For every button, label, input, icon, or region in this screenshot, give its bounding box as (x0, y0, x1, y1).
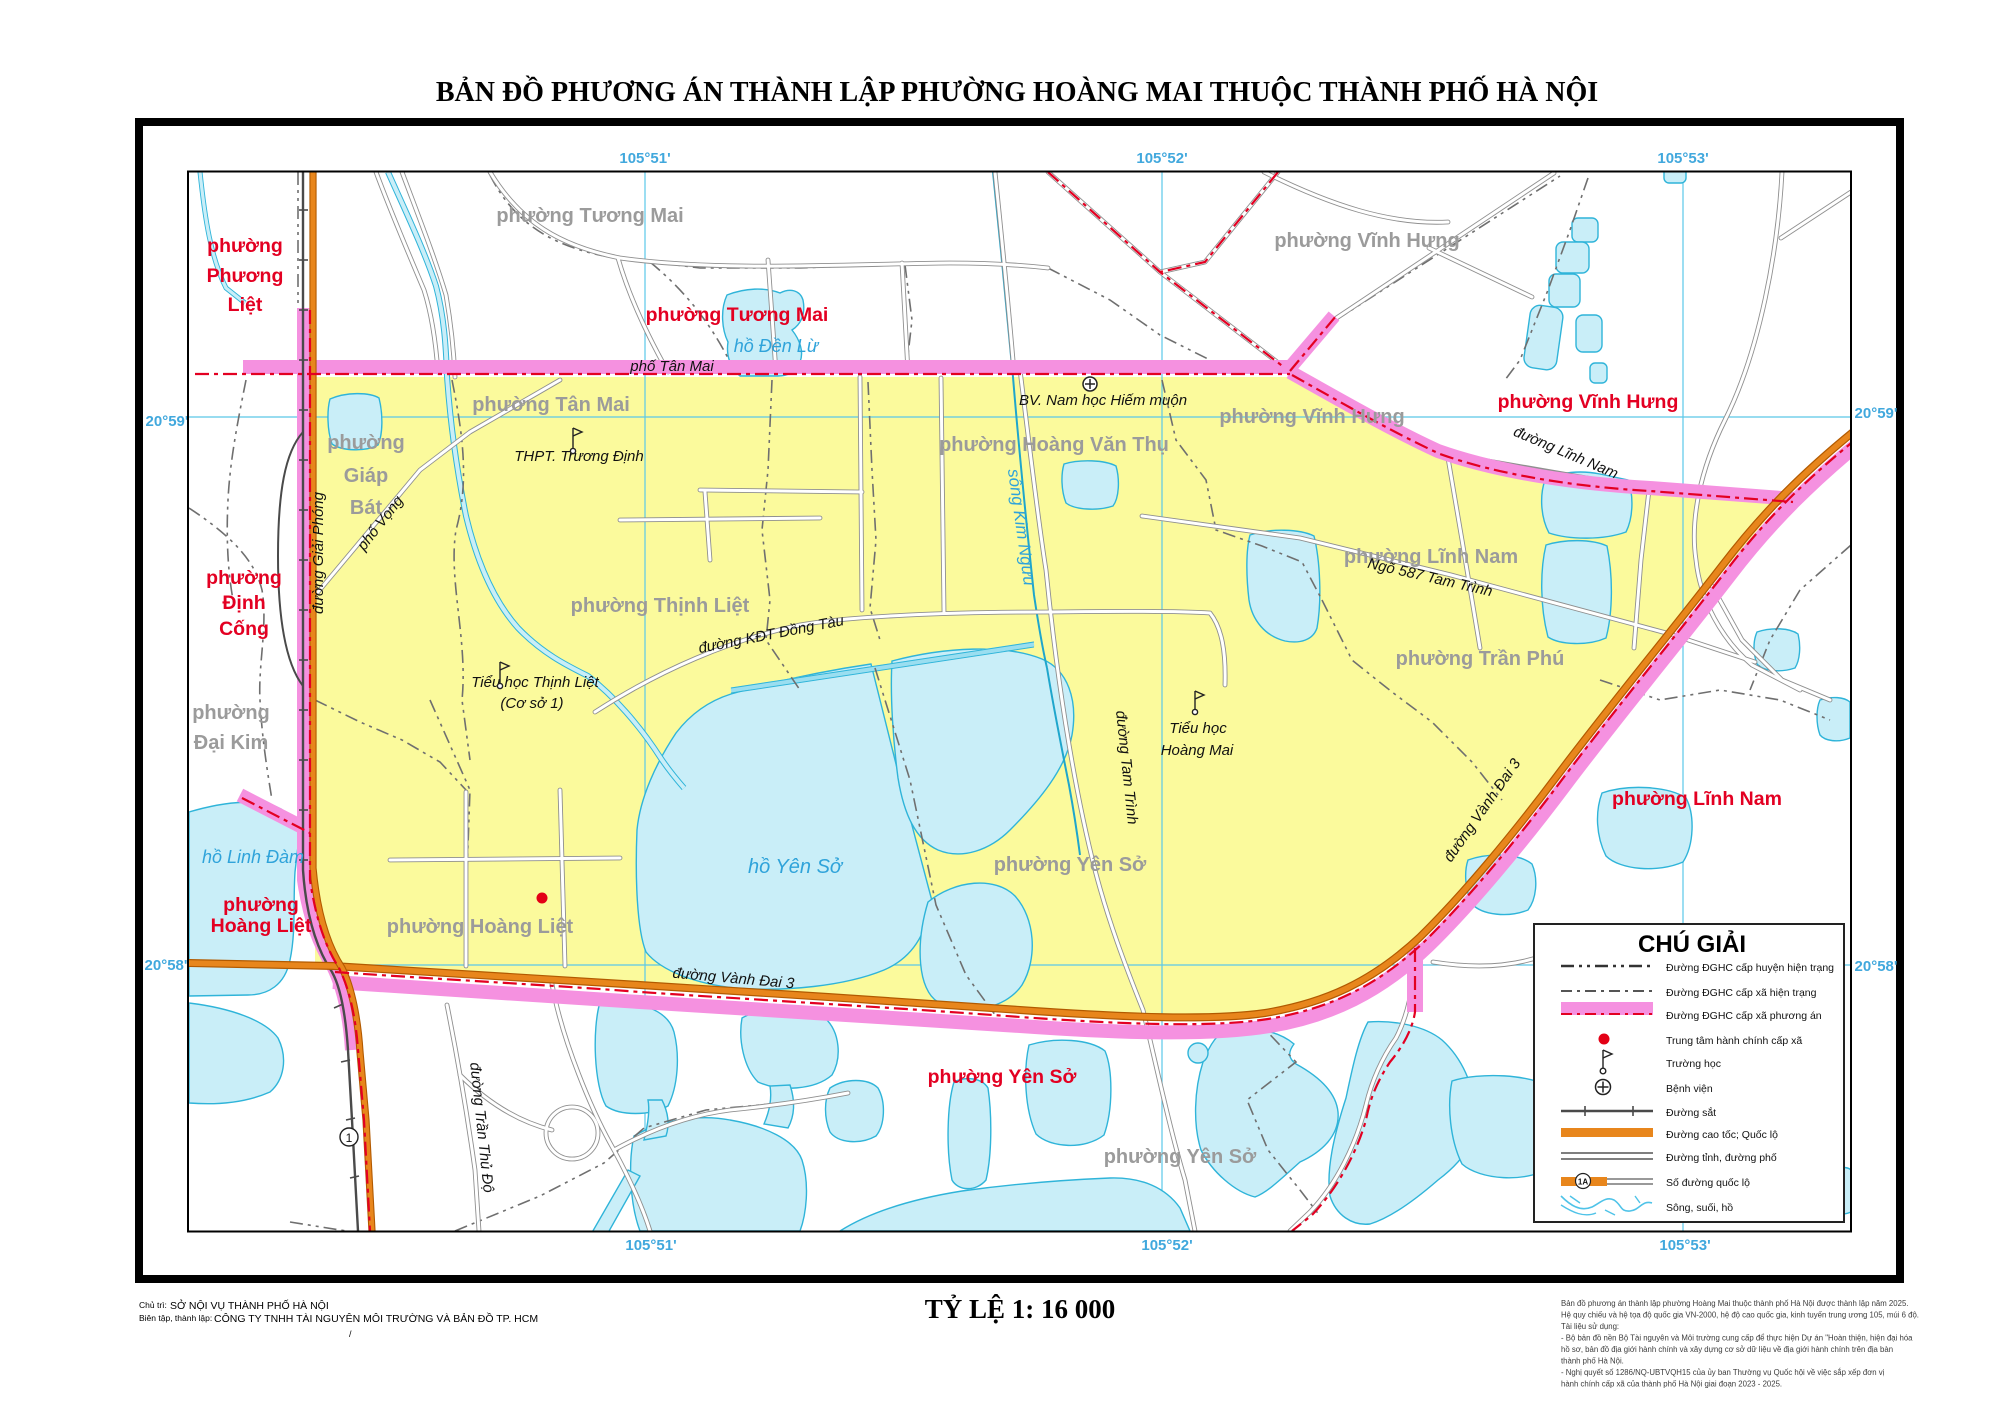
svg-text:105°53': 105°53' (1657, 150, 1708, 167)
svg-text:105°53': 105°53' (1659, 1237, 1710, 1254)
svg-text:1A: 1A (1578, 1178, 1588, 1187)
svg-text:- Bộ bản đồ nền Bộ Tài nguyên: - Bộ bản đồ nền Bộ Tài nguyên và Môi trư… (1561, 1334, 1913, 1343)
svg-text:Số đường quốc lộ: Số đường quốc lộ (1666, 1177, 1750, 1189)
svg-text:Phương: Phương (207, 265, 284, 287)
svg-text:phường Vĩnh Hưng: phường Vĩnh Hưng (1219, 406, 1404, 428)
svg-text:BẢN ĐỒ PHƯƠNG ÁN THÀNH LẬP PHƯ: BẢN ĐỒ PHƯƠNG ÁN THÀNH LẬP PHƯỜNG HOÀNG … (436, 76, 1598, 108)
svg-text:(Cơ sở 1): (Cơ sở 1) (500, 695, 563, 712)
svg-text:phường Lĩnh Nam: phường Lĩnh Nam (1612, 788, 1782, 810)
svg-text:hồ Linh Đàm: hồ Linh Đàm (202, 847, 304, 867)
svg-text:Trung tâm hành chính cấp xã: Trung tâm hành chính cấp xã (1666, 1035, 1802, 1047)
svg-text:phường: phường (207, 235, 283, 257)
svg-text:phường: phường (327, 432, 405, 454)
svg-text:20°58': 20°58' (145, 957, 188, 974)
svg-text:- Nghị quyết số 1286/NQ-UBTVQH: - Nghị quyết số 1286/NQ-UBTVQH15 của ủy … (1561, 1368, 1885, 1377)
svg-text:phường Hoàng Văn Thụ: phường Hoàng Văn Thụ (939, 434, 1169, 456)
svg-text:hồ sơ, bản đồ địa giới hành ch: hồ sơ, bản đồ địa giới hành chính và xây… (1561, 1345, 1893, 1354)
svg-text:Bản đồ phương án thành lập phư: Bản đồ phương án thành lập phường Hoàng … (1561, 1299, 1908, 1308)
svg-text:Bệnh viện: Bệnh viện (1666, 1083, 1713, 1095)
svg-text:Biên tập, thành lập:: Biên tập, thành lập: (139, 1313, 212, 1323)
svg-text:CÔNG TY TNHH TÀI NGUYÊN MÔI TR: CÔNG TY TNHH TÀI NGUYÊN MÔI TRƯỜNG VÀ BẢ… (214, 1312, 538, 1325)
svg-text:phường Tân Mai: phường Tân Mai (472, 394, 630, 416)
svg-text:thành phố Hà Nội.: thành phố Hà Nội. (1561, 1357, 1624, 1366)
svg-text:105°52': 105°52' (1136, 150, 1187, 167)
svg-text:phường Hoàng Liệt: phường Hoàng Liệt (387, 916, 574, 938)
svg-text:20°59': 20°59' (1855, 405, 1898, 422)
svg-text:Sông, suối, hồ: Sông, suối, hồ (1666, 1202, 1733, 1214)
svg-text:THPT. Trương Định: THPT. Trương Định (514, 448, 643, 465)
svg-text:phố Tân Mai: phố Tân Mai (629, 358, 714, 375)
svg-text:CHÚ GIẢI: CHÚ GIẢI (1638, 929, 1746, 958)
svg-text:Tiểu học Thịnh Liệt: Tiểu học Thịnh Liệt (471, 674, 599, 691)
svg-text:20°58': 20°58' (1855, 958, 1898, 975)
svg-text:Cống: Cống (219, 618, 269, 640)
svg-text:phường Thịnh Liệt: phường Thịnh Liệt (571, 595, 750, 617)
svg-text:105°52': 105°52' (1141, 1237, 1192, 1254)
svg-text:Chủ trì:: Chủ trì: (139, 1300, 167, 1310)
svg-text:phường Yên Sở: phường Yên Sở (1104, 1146, 1257, 1168)
svg-text:phường Yên Sở: phường Yên Sở (994, 854, 1147, 876)
svg-text:Đường ĐGHC cấp huyện hiện trạn: Đường ĐGHC cấp huyện hiện trạng (1666, 962, 1834, 974)
svg-text:20°59': 20°59' (146, 413, 189, 430)
svg-text:Đường ĐGHC cấp xã hiện trạng: Đường ĐGHC cấp xã hiện trạng (1666, 987, 1817, 999)
svg-text:1: 1 (346, 1131, 353, 1145)
svg-text:phường: phường (192, 702, 270, 724)
svg-text:phường Yên Sở: phường Yên Sở (928, 1066, 1077, 1088)
svg-text:hồ Đền Lừ: hồ Đền Lừ (734, 336, 820, 356)
svg-text:Đại Kim: Đại Kim (194, 732, 268, 754)
svg-text:Trường học: Trường học (1666, 1058, 1721, 1070)
svg-text:phường: phường (223, 894, 299, 916)
svg-text:Đường cao tốc; Quốc lộ: Đường cao tốc; Quốc lộ (1666, 1129, 1778, 1141)
svg-text:Hoàng Mai: Hoàng Mai (1161, 742, 1234, 759)
svg-text:BV. Nam học Hiếm muộn: BV. Nam học Hiếm muộn (1019, 392, 1187, 409)
svg-text:hồ Yên Sở: hồ Yên Sở (748, 856, 844, 878)
svg-text:105°51': 105°51' (625, 1237, 676, 1254)
svg-text:Liệt: Liệt (228, 294, 263, 316)
svg-text:TỶ LỆ 1: 16 000: TỶ LỆ 1: 16 000 (925, 1294, 1116, 1324)
svg-text:Hệ quy chiếu và hệ tọa độ quốc: Hệ quy chiếu và hệ tọa độ quốc gia VN-20… (1561, 1311, 1919, 1320)
svg-text:Hoàng Liệt: Hoàng Liệt (211, 915, 312, 937)
svg-text:Đường ĐGHC cấp xã phương án: Đường ĐGHC cấp xã phương án (1666, 1010, 1822, 1022)
svg-text:phường Vĩnh Hưng: phường Vĩnh Hưng (1274, 230, 1459, 252)
svg-text:phường Vĩnh Hưng: phường Vĩnh Hưng (1498, 391, 1679, 413)
svg-text:Tiểu học: Tiểu học (1169, 720, 1227, 737)
svg-text:phường Trần Phú: phường Trần Phú (1396, 648, 1565, 670)
svg-text:phường Tương Mai: phường Tương Mai (496, 205, 683, 227)
svg-text:phường Tương Mai: phường Tương Mai (646, 304, 829, 326)
svg-text:Định: Định (222, 592, 265, 614)
svg-text:Đường sắt: Đường sắt (1666, 1106, 1716, 1119)
svg-text:hành chính cấp xã của thành ph: hành chính cấp xã của thành phố Hà Nội g… (1561, 1380, 1782, 1389)
svg-text:phường: phường (206, 567, 282, 589)
svg-text:105°51': 105°51' (619, 150, 670, 167)
svg-text:SỞ NỘI VỤ THÀNH PHỐ HÀ NỘI: SỞ NỘI VỤ THÀNH PHỐ HÀ NỘI (170, 1298, 329, 1312)
svg-text:Tài liệu sử dụng:: Tài liệu sử dụng: (1561, 1322, 1619, 1331)
svg-text:Giáp: Giáp (344, 465, 388, 487)
svg-text:đường Giải Phóng: đường Giải Phóng (310, 491, 327, 614)
svg-text:Đường tỉnh, đường phố: Đường tỉnh, đường phố (1666, 1152, 1777, 1164)
